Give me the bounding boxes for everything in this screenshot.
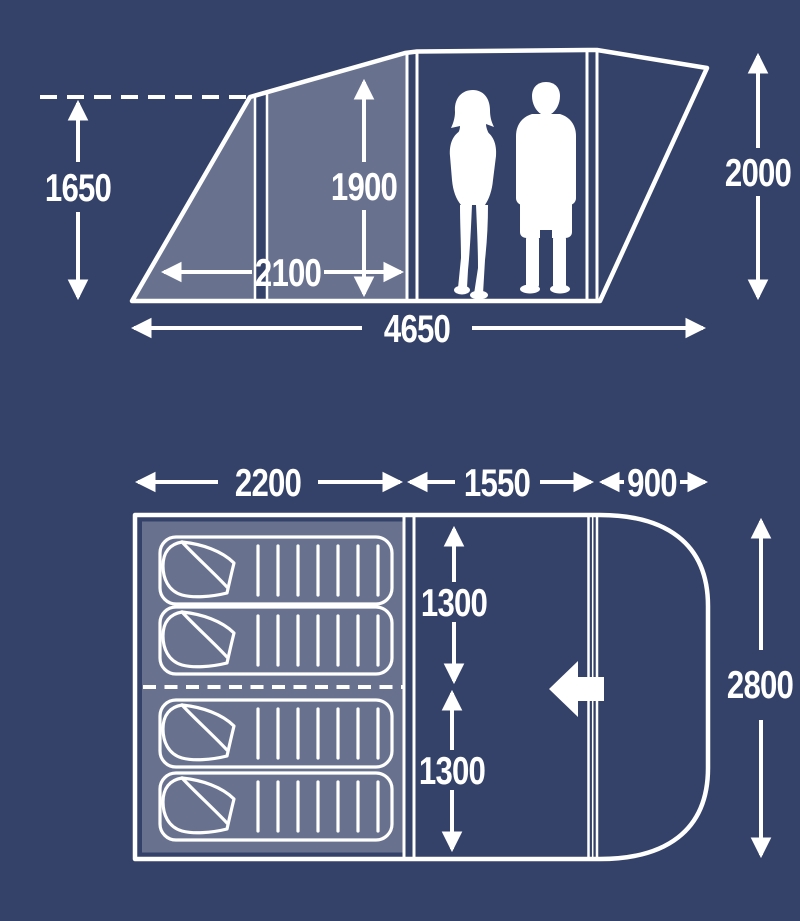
- dim-2000-label: 2000: [725, 152, 791, 195]
- dim-2800-label: 2800: [727, 664, 793, 707]
- dimension-length-total: 4650: [134, 308, 703, 351]
- dim-1900-label: 1900: [331, 166, 397, 209]
- dimension-length-living: 1550: [410, 462, 591, 505]
- diagram-canvas: 1650 1900 2100 2000 4650: [0, 0, 800, 921]
- dim-1550-label: 1550: [464, 462, 530, 505]
- dimension-width-half-top: 1300: [421, 529, 487, 681]
- dimension-height-rear: 2000: [725, 56, 791, 297]
- side-elevation-view: 1650 1900 2100 2000 4650: [40, 50, 791, 351]
- dimension-length-bedroom: 2200: [138, 462, 400, 505]
- dimension-length-porch: 900: [602, 462, 705, 505]
- dim-1650-label: 1650: [45, 167, 111, 210]
- floor-plan-view: 2200 1550 900: [135, 462, 793, 859]
- dim-2100-label: 2100: [255, 252, 321, 295]
- man-silhouette: [516, 82, 576, 294]
- woman-silhouette: [450, 90, 496, 300]
- dim-1300-bottom-label: 1300: [419, 750, 485, 793]
- dimension-height-front: 1650: [45, 103, 111, 297]
- dim-2200-label: 2200: [235, 462, 301, 505]
- dimension-width-half-bottom: 1300: [419, 693, 485, 849]
- tent-dimensions-diagram: 1650 1900 2100 2000 4650: [0, 0, 800, 921]
- dim-900-label: 900: [627, 462, 677, 505]
- dimension-width-total: 2800: [727, 521, 793, 855]
- dim-1300-top-label: 1300: [421, 582, 487, 625]
- dim-4650-label: 4650: [384, 308, 450, 351]
